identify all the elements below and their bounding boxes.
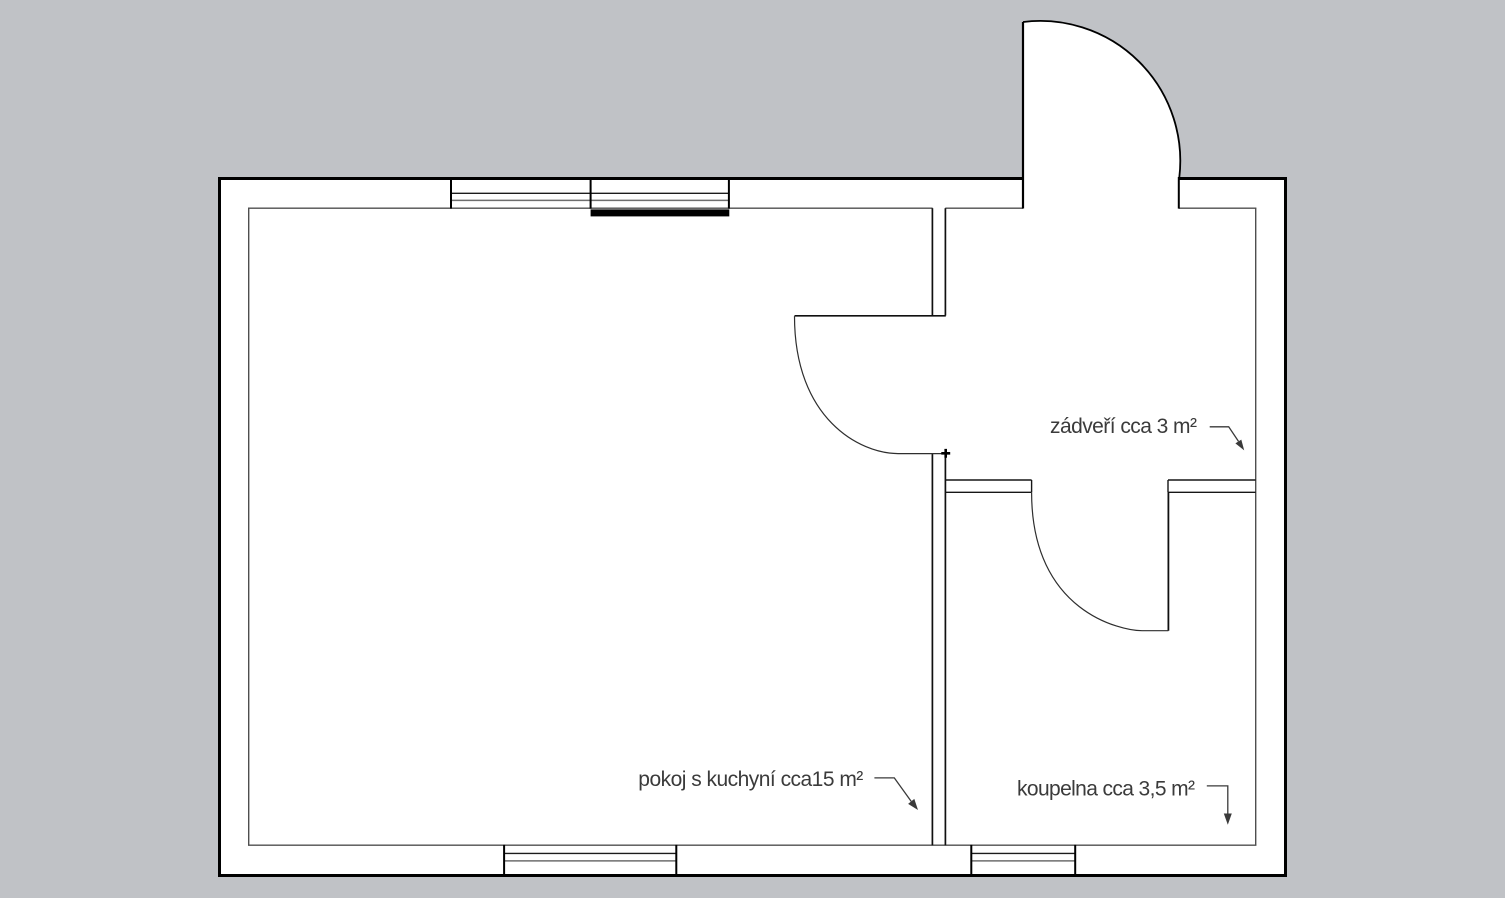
svg-text:koupelna cca 3,5 m²: koupelna cca 3,5 m² — [1017, 777, 1195, 800]
svg-text:zádveří cca 3 m²: zádveří cca 3 m² — [1050, 415, 1197, 438]
svg-text:pokoj s kuchyní cca15 m²: pokoj s kuchyní cca15 m² — [638, 768, 863, 791]
